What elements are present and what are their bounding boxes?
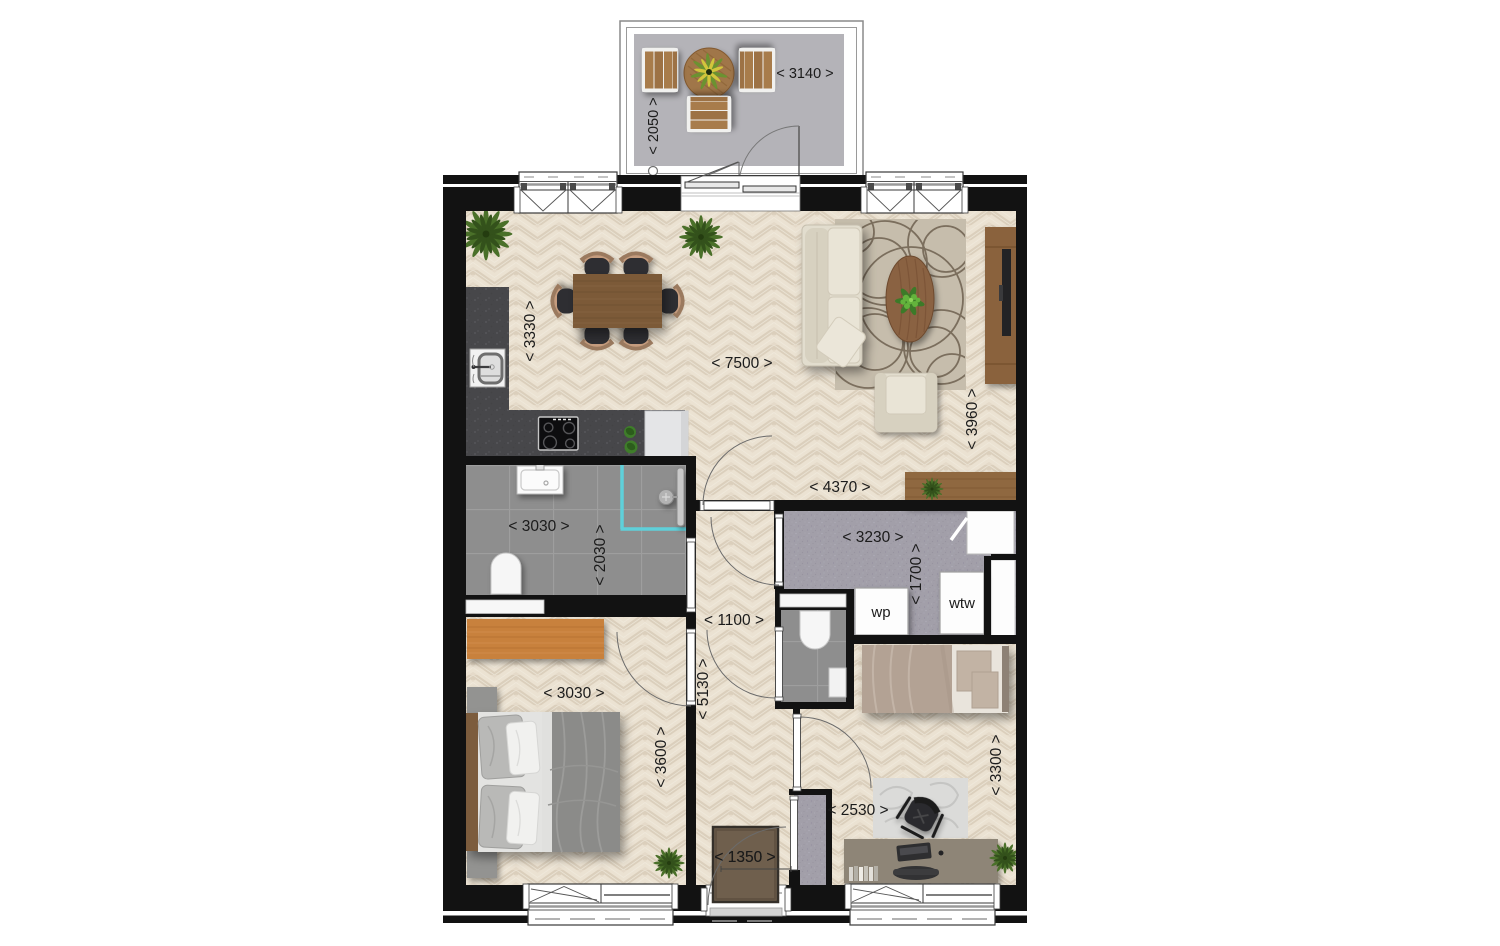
svg-text:< 7500 >: < 7500 > [711,355,772,372]
svg-text:< 4370 >: < 4370 > [809,479,870,496]
svg-text:< 1700 >: < 1700 > [908,543,925,604]
svg-text:< 5130 >: < 5130 > [695,658,712,719]
svg-text:< 3300 >: < 3300 > [988,734,1005,795]
svg-text:< 3230 >: < 3230 > [842,529,903,546]
svg-text:< 3960 >: < 3960 > [964,388,981,449]
svg-text:< 1100 >: < 1100 > [704,612,764,629]
svg-text:< 3030 >: < 3030 > [543,685,604,702]
svg-text:< 1350 >: < 1350 > [714,849,775,866]
svg-text:wp: wp [870,604,890,621]
svg-text:< 3600 >: < 3600 > [653,726,670,787]
svg-text:< 3140 >: < 3140 > [776,66,833,82]
svg-text:< 3330 >: < 3330 > [522,300,539,361]
svg-text:< 3030 >: < 3030 > [508,518,569,535]
svg-text:wtw: wtw [948,595,975,612]
svg-text:< 2050 >: < 2050 > [646,97,662,154]
svg-text:< 2530 >: < 2530 > [827,802,888,819]
svg-text:< 2030 >: < 2030 > [592,524,609,585]
